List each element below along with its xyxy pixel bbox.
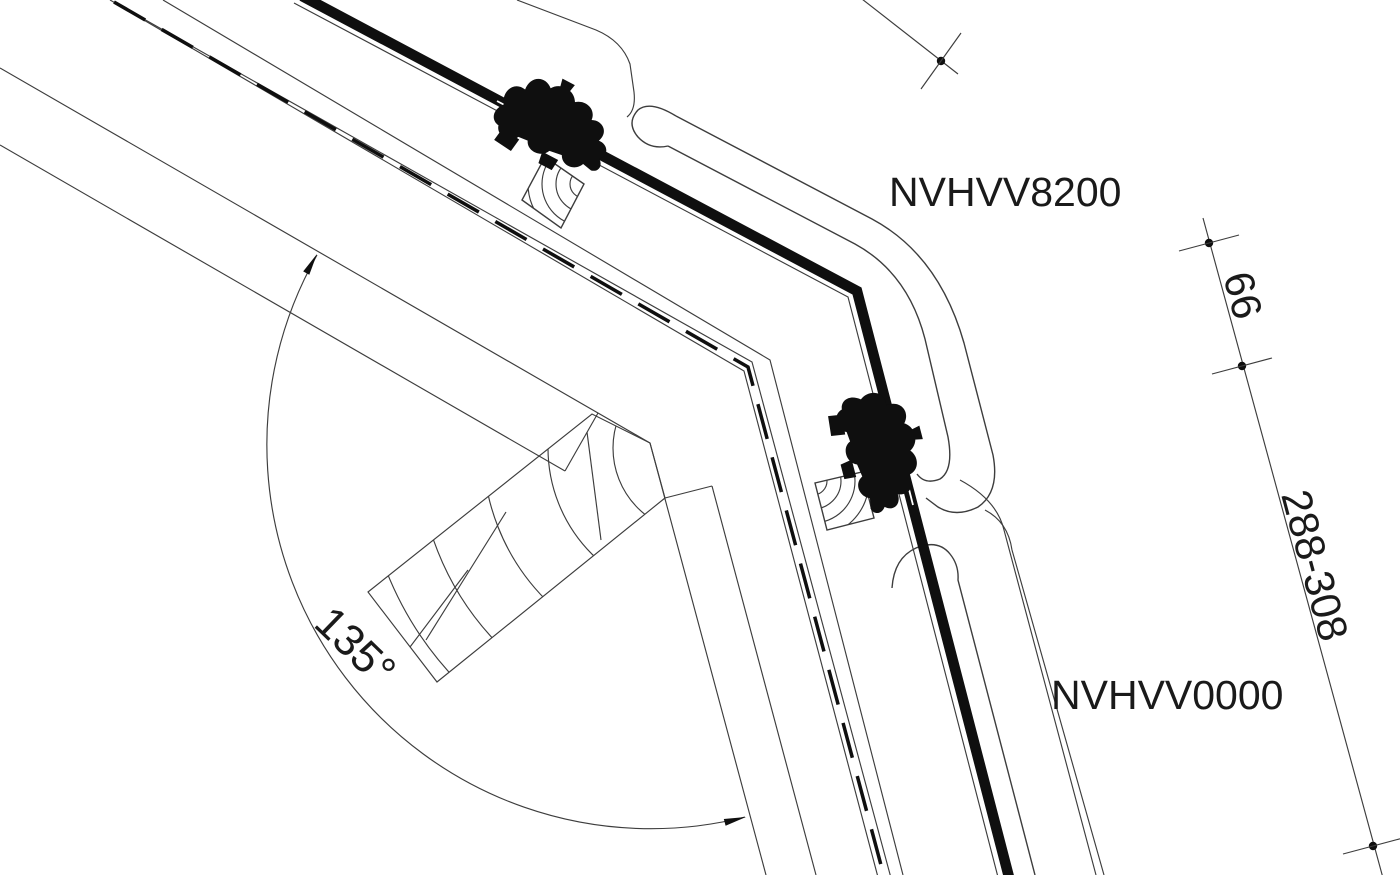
dim-tick-stroke-top: [921, 33, 961, 89]
dimension-lines: 66 288-308: [853, 0, 1400, 875]
upper-frame-bottom-line: [0, 145, 565, 471]
dim-tick-stroke-3: [1343, 838, 1400, 854]
upper-flashing-profile: [632, 106, 995, 512]
arc-arrowhead-top: [303, 254, 317, 275]
profile-top-hook: [632, 106, 676, 147]
label-lower-flashing: NVHVV0000: [1051, 672, 1283, 718]
flashing-section-drawing: 135° 66 288-308 NVHVV8200 NVHVV0000: [0, 0, 1400, 875]
dim-tick-stroke-1: [1179, 235, 1239, 251]
clamp-lower: [823, 383, 938, 520]
dim-label-288-308: 288-308: [1272, 485, 1357, 646]
inner-frame-edge-line: [0, 68, 766, 875]
dim-label-66: 66: [1214, 267, 1271, 324]
lower-frame-bottom-line: [712, 486, 816, 875]
arc-arrowhead-bottom: [724, 817, 746, 826]
technical-drawing-canvas: 135° 66 288-308 NVHVV8200 NVHVV0000: [0, 0, 1400, 875]
label-upper-flashing: NVHVV8200: [889, 169, 1121, 215]
angle-arc: [267, 255, 745, 829]
lower-frame-end-face: [665, 486, 712, 498]
clamp-upper: [482, 58, 628, 191]
rafter-outline: [368, 414, 665, 682]
angle-label: 135°: [305, 597, 405, 695]
